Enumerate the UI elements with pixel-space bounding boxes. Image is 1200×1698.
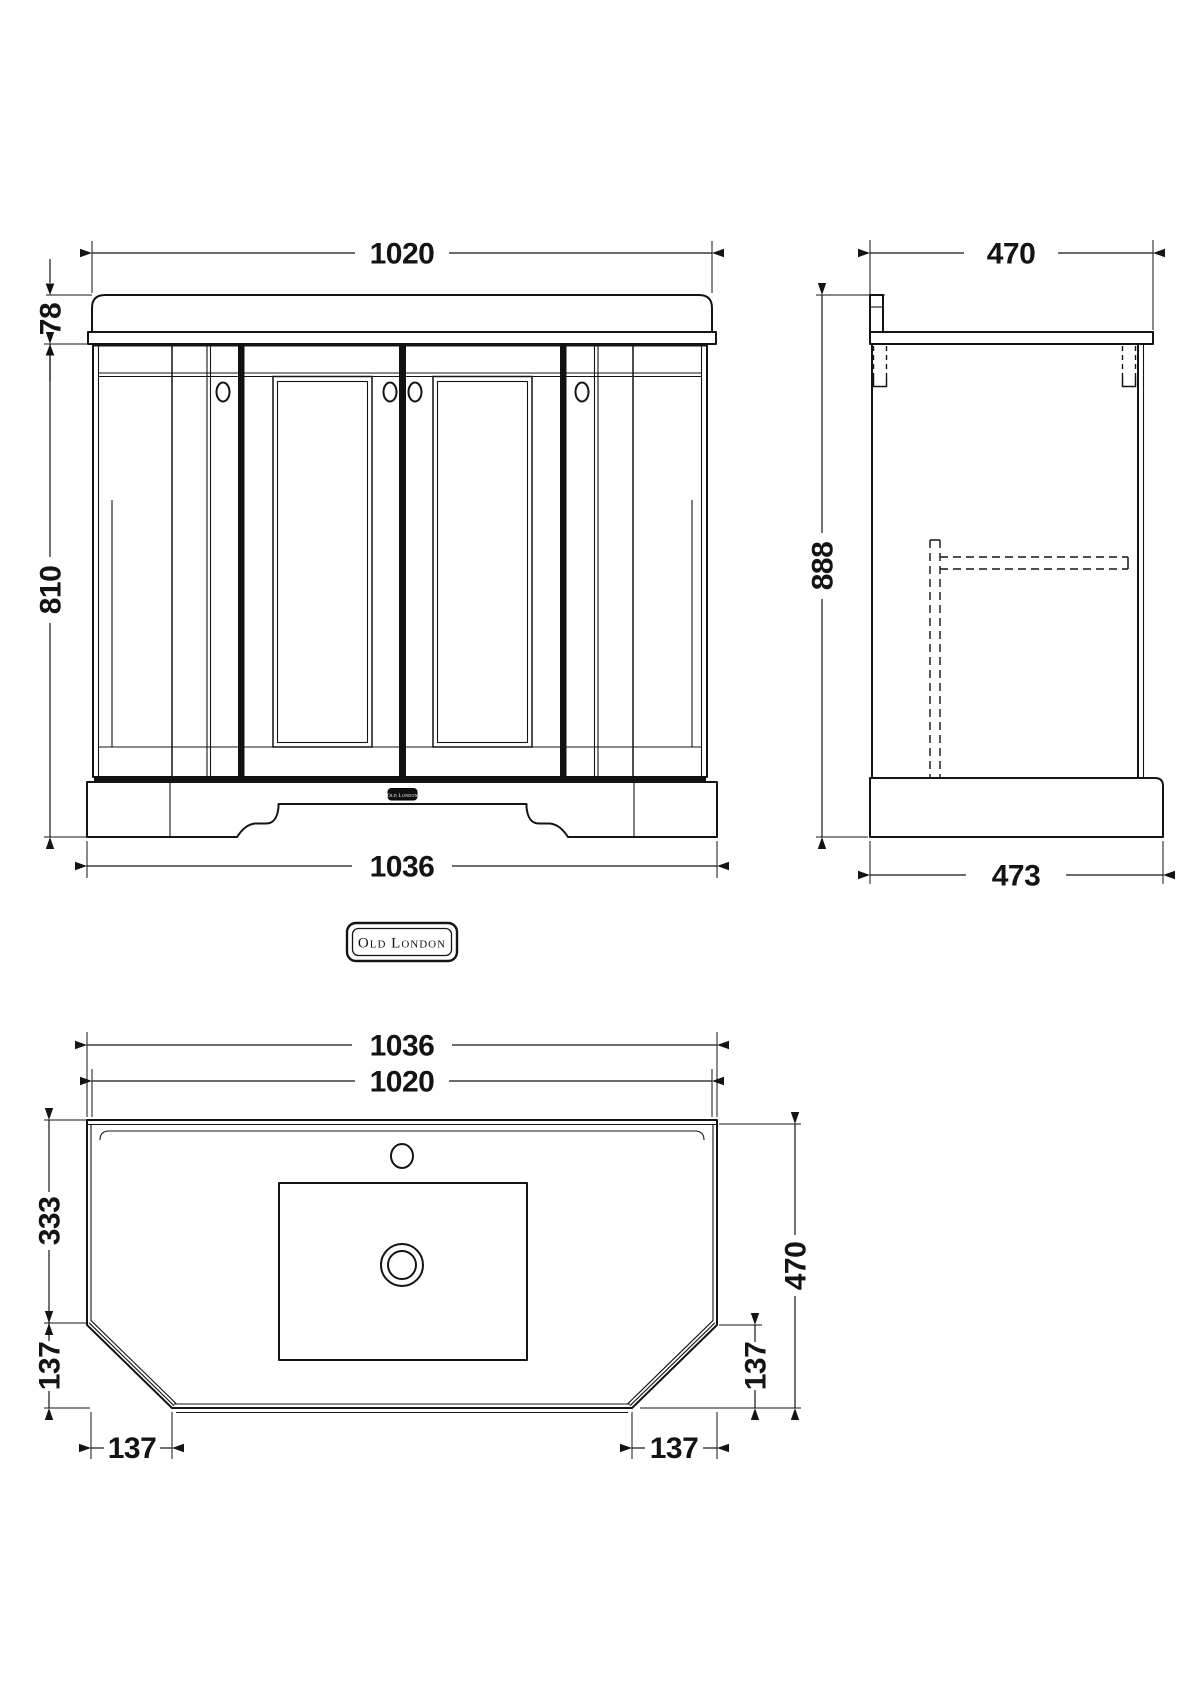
dimension-label: 470 (987, 238, 1036, 271)
dimension-label: 137 (740, 1342, 773, 1391)
dimension-label: 1036 (370, 1030, 435, 1063)
brand-badge: Old London (347, 923, 457, 961)
dimension-label: 333 (34, 1197, 67, 1246)
door-gap-dark-left (238, 344, 245, 777)
door-gap-center (399, 344, 406, 777)
dimension-label: 137 (108, 1432, 157, 1465)
dimension-label: 137 (650, 1432, 699, 1465)
basin-bowl-outline (279, 1183, 527, 1360)
worktop-front (92, 295, 712, 332)
plinth-side (870, 778, 1163, 837)
worktop-upstand-side (870, 295, 883, 332)
badge-label: Old London (358, 936, 446, 952)
plinth-plate-label: Old London (387, 794, 418, 799)
vanity-technical-drawing-page: Old London 1020 78 810 1036 (0, 0, 1200, 1698)
dimension-label: 1020 (370, 1066, 435, 1099)
dimension-label: 1036 (370, 851, 435, 884)
technical-drawing: Old London 1020 78 810 1036 (0, 0, 1200, 1698)
dimension-label: 810 (35, 566, 68, 615)
dimension-label: 888 (807, 542, 840, 591)
front-view: Old London (87, 295, 717, 837)
dimension-label: 1020 (370, 238, 435, 271)
dimension-label: 473 (992, 860, 1041, 893)
dimension-label: 470 (780, 1242, 813, 1291)
worktop-lip-front (88, 332, 716, 344)
dimension-label: 78 (35, 303, 68, 335)
worktop-slab-side (870, 332, 1153, 344)
dimension-label: 137 (34, 1342, 67, 1391)
plan-view (87, 1120, 717, 1413)
door-gap-dark-right (560, 344, 567, 777)
